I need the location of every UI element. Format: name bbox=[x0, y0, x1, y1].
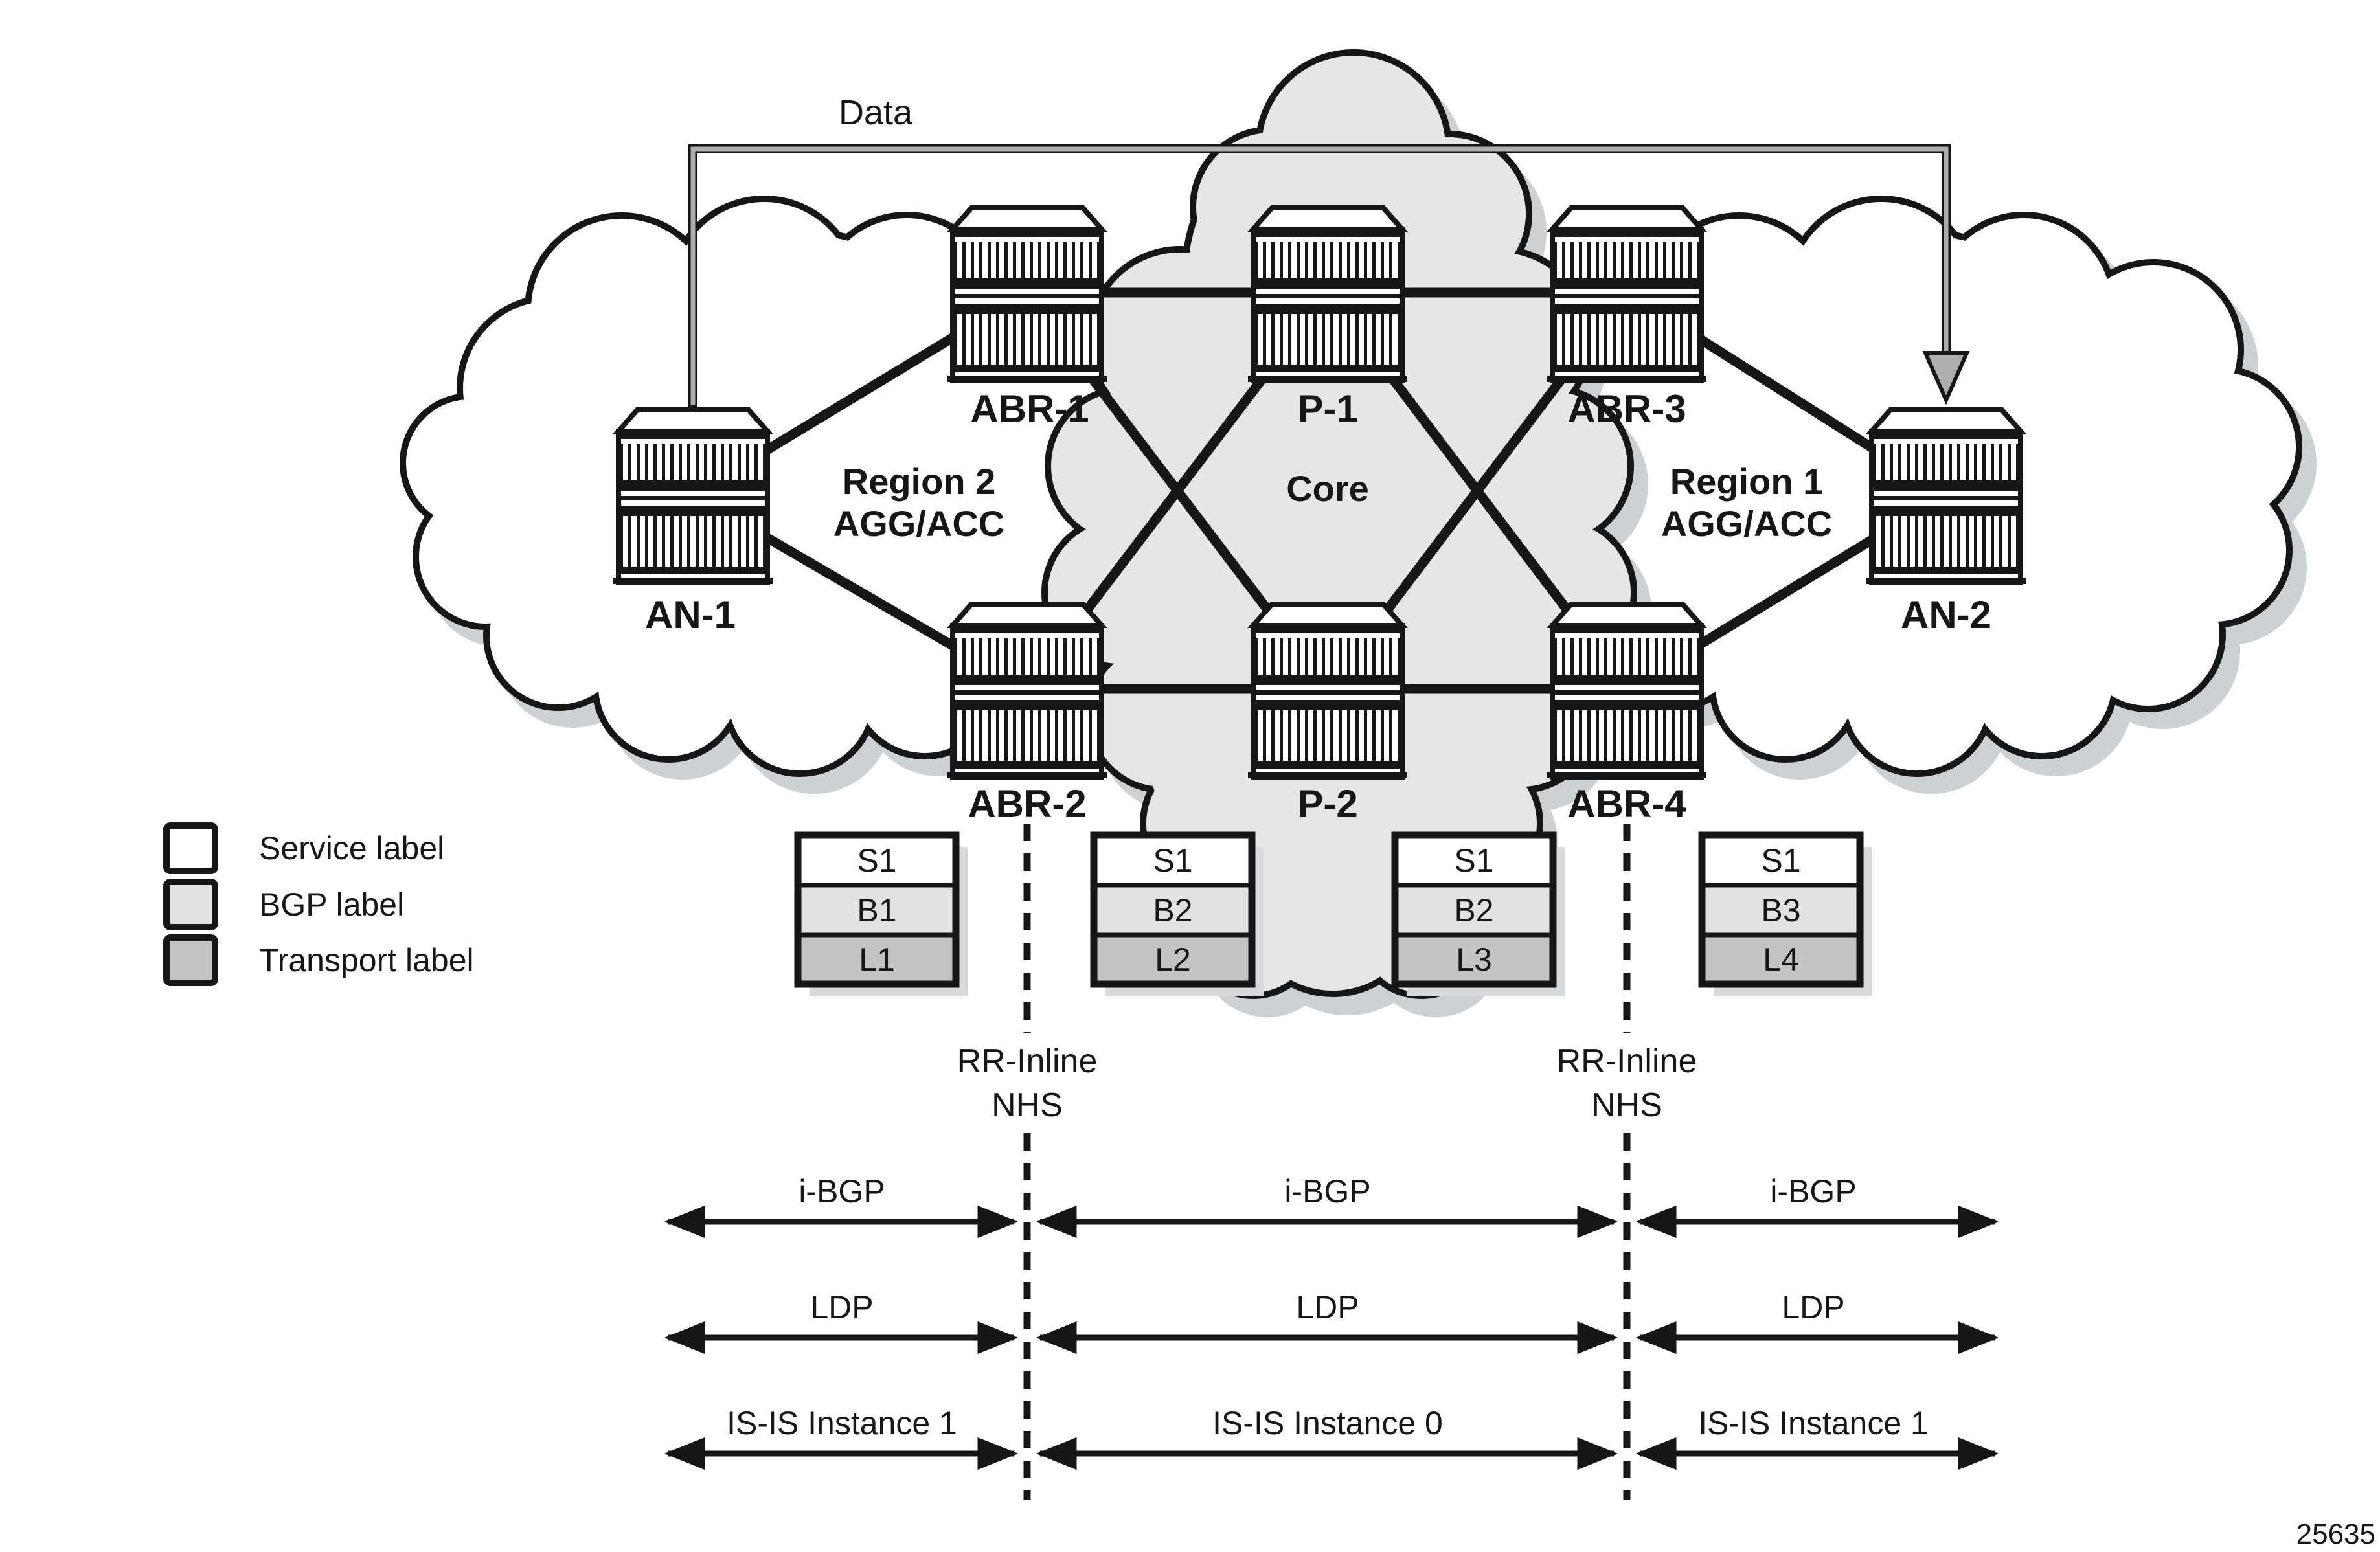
rr-inline-left-line2: NHS bbox=[992, 1086, 1063, 1124]
ldp-label-left: LDP bbox=[810, 1289, 873, 1325]
stack2-transport-text: L2 bbox=[1155, 941, 1191, 978]
stack4-transport-text: L4 bbox=[1763, 941, 1799, 978]
node-label-abr3: ABR-3 bbox=[1567, 387, 1686, 431]
node-label-an2: AN-2 bbox=[1901, 593, 1991, 636]
region2-label-line1: Region 2 bbox=[843, 461, 995, 502]
legend-service-swatch bbox=[166, 826, 215, 871]
label-stack-3: S1 B2 L3 bbox=[1395, 835, 1565, 996]
node-label-abr4: ABR-4 bbox=[1567, 782, 1686, 826]
stack2-bgp-text: B2 bbox=[1153, 892, 1192, 928]
isis-label-left: IS-IS Instance 1 bbox=[727, 1405, 957, 1441]
ibgp-label-left: i-BGP bbox=[799, 1173, 885, 1209]
rr-inline-left-line1: RR-Inline bbox=[957, 1042, 1098, 1080]
ibgp-label-middle: i-BGP bbox=[1284, 1173, 1370, 1209]
diagram-svg: S1 B1 L1 S1 B2 L2 S1 B2 L3 S1 B3 L4 bbox=[0, 0, 2380, 1552]
stack3-transport-text: L3 bbox=[1456, 941, 1492, 978]
label-stack-4: S1 B3 L4 bbox=[1702, 835, 1872, 996]
stack2-service-text: S1 bbox=[1153, 842, 1192, 879]
rr-inline-right-line1: RR-Inline bbox=[1557, 1042, 1697, 1080]
stack1-bgp-text: B1 bbox=[857, 892, 896, 928]
label-stack-1: S1 B1 L1 bbox=[798, 835, 968, 996]
stack4-service-text: S1 bbox=[1761, 842, 1800, 879]
data-flow-label: Data bbox=[839, 93, 913, 132]
legend-service-label: Service label bbox=[259, 830, 444, 866]
node-label-abr2: ABR-2 bbox=[968, 782, 1086, 826]
isis-label-middle: IS-IS Instance 0 bbox=[1212, 1405, 1443, 1441]
stack4-bgp-text: B3 bbox=[1761, 892, 1800, 928]
node-label-abr1: ABR-1 bbox=[970, 387, 1089, 431]
router-abr1-icon bbox=[947, 208, 1107, 382]
figure-number: 25635 bbox=[2296, 1518, 2375, 1550]
rr-inline-right-line2: NHS bbox=[1591, 1086, 1662, 1124]
router-p1-icon bbox=[1248, 208, 1407, 382]
region2-label-line2: AGG/ACC bbox=[833, 503, 1004, 544]
node-label-p1: P-1 bbox=[1297, 387, 1357, 431]
legend-bgp-label: BGP label bbox=[259, 886, 404, 923]
network-diagram: S1 B1 L1 S1 B2 L2 S1 B2 L3 S1 B3 L4 bbox=[0, 0, 2380, 1552]
router-p2-icon bbox=[1248, 604, 1407, 778]
isis-label-right: IS-IS Instance 1 bbox=[1698, 1405, 1929, 1441]
legend: Service label BGP label Transport label bbox=[166, 826, 474, 983]
region1-label-line1: Region 1 bbox=[1670, 461, 1823, 502]
node-label-p2: P-2 bbox=[1297, 782, 1357, 826]
label-stack-2: S1 B2 L2 bbox=[1094, 835, 1264, 996]
legend-bgp-swatch bbox=[166, 882, 215, 927]
legend-transport-label: Transport label bbox=[259, 942, 474, 978]
router-abr3-icon bbox=[1547, 208, 1706, 382]
router-an1-icon bbox=[613, 410, 773, 584]
stack1-service-text: S1 bbox=[857, 842, 896, 879]
ibgp-label-right: i-BGP bbox=[1770, 1173, 1856, 1209]
router-abr2-icon bbox=[947, 604, 1107, 778]
stack3-bgp-text: B2 bbox=[1454, 892, 1493, 928]
region1-label-line2: AGG/ACC bbox=[1661, 503, 1832, 544]
ldp-label-right: LDP bbox=[1782, 1289, 1844, 1325]
ldp-label-middle: LDP bbox=[1296, 1289, 1359, 1325]
router-abr4-icon bbox=[1547, 604, 1706, 778]
router-an2-icon bbox=[1866, 410, 2026, 584]
stack3-service-text: S1 bbox=[1454, 842, 1493, 879]
core-label: Core bbox=[1286, 468, 1369, 509]
node-label-an1: AN-1 bbox=[645, 593, 736, 636]
legend-transport-swatch bbox=[166, 938, 215, 983]
stack1-transport-text: L1 bbox=[859, 941, 895, 978]
